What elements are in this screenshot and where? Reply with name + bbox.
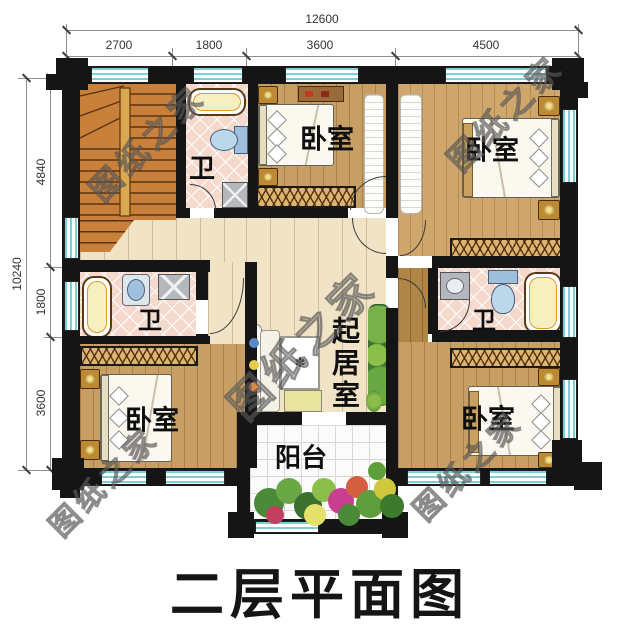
flower-dot bbox=[368, 462, 386, 480]
plan-title: 二层平面图 bbox=[0, 550, 640, 625]
dim-line-top-total bbox=[66, 30, 578, 31]
floor-plan: 12600 2700 1800 3600 4500 10240 4840 180… bbox=[0, 0, 640, 625]
dim-top-seg-2: 1800 bbox=[196, 38, 223, 52]
nightstand-icon bbox=[258, 86, 278, 104]
dim-left-seg-3: 3600 bbox=[34, 390, 48, 417]
dim-top-seg-3: 3600 bbox=[307, 38, 334, 52]
nightstand-icon bbox=[538, 200, 560, 220]
dim-left-seg-2: 1800 bbox=[34, 289, 48, 316]
wall-balcony-top-b bbox=[346, 412, 386, 425]
flower-dot bbox=[304, 504, 326, 526]
wall-center-vertical-c bbox=[386, 308, 398, 412]
plant-icon bbox=[366, 390, 382, 412]
wardrobe-icon bbox=[80, 346, 198, 366]
room-label-bedroom-top-middle: 卧室 bbox=[300, 118, 354, 157]
room-label-bath-top: 卫 bbox=[189, 149, 215, 186]
dim-left-total: 10240 bbox=[10, 257, 24, 290]
corner-pilaster bbox=[572, 82, 588, 98]
nightstand-icon bbox=[258, 168, 278, 186]
dresser-item bbox=[321, 91, 329, 97]
wall-bath-left-a bbox=[196, 272, 208, 300]
wall-bath-bedroom bbox=[248, 84, 258, 210]
window bbox=[65, 218, 78, 258]
window bbox=[490, 471, 546, 484]
corner-pilaster bbox=[56, 58, 88, 90]
bathtub-icon bbox=[82, 276, 112, 338]
room-label-balcony: 阳台 bbox=[275, 438, 327, 475]
dim-line-left-total bbox=[26, 78, 27, 470]
dim-top-total: 12600 bbox=[305, 12, 338, 26]
room-label-bath-left: 卫 bbox=[138, 301, 162, 336]
shower-icon bbox=[158, 274, 190, 300]
wall-hall-top-b bbox=[214, 208, 348, 218]
window bbox=[92, 68, 148, 82]
corner-pilaster bbox=[574, 462, 602, 490]
bathtub-icon bbox=[524, 272, 562, 334]
wall-hall-bottom bbox=[62, 260, 210, 272]
window bbox=[65, 282, 78, 330]
wall-center-vertical-a bbox=[386, 84, 398, 218]
dim-top-seg-4: 4500 bbox=[473, 38, 500, 52]
window bbox=[563, 287, 576, 337]
window bbox=[166, 471, 224, 484]
wall-right-h-lower bbox=[432, 330, 578, 342]
flower-dot bbox=[338, 504, 360, 526]
wardrobe-icon bbox=[450, 348, 562, 368]
window bbox=[286, 68, 358, 82]
corner-pilaster bbox=[46, 74, 60, 90]
corner-pilaster bbox=[228, 512, 254, 538]
curtain-icon bbox=[400, 94, 422, 214]
flower-dot bbox=[266, 506, 284, 524]
wall-right-h-upper bbox=[432, 256, 578, 268]
room-label-bath-right: 卫 bbox=[472, 301, 496, 336]
shower-icon bbox=[222, 182, 248, 208]
nightstand-icon bbox=[80, 369, 100, 389]
dim-top-seg-1: 2700 bbox=[106, 38, 133, 52]
wall-hall-top-a bbox=[176, 208, 190, 218]
window bbox=[194, 68, 242, 82]
wall-center-vertical-b bbox=[386, 256, 398, 278]
wardrobe-icon bbox=[256, 186, 356, 208]
window bbox=[563, 110, 576, 182]
dim-line-top-segments bbox=[66, 56, 578, 57]
wall-bath-right-left bbox=[428, 268, 438, 334]
sink-icon bbox=[440, 272, 470, 300]
dim-left-seg-1: 4840 bbox=[34, 159, 48, 186]
toilet-icon bbox=[488, 270, 518, 284]
nightstand-icon bbox=[538, 368, 560, 386]
dim-line-left-segments bbox=[50, 78, 51, 470]
window bbox=[563, 380, 576, 438]
dresser-icon bbox=[298, 86, 344, 102]
dresser-item bbox=[305, 91, 313, 97]
wall-bath-left-bottom bbox=[62, 336, 210, 344]
